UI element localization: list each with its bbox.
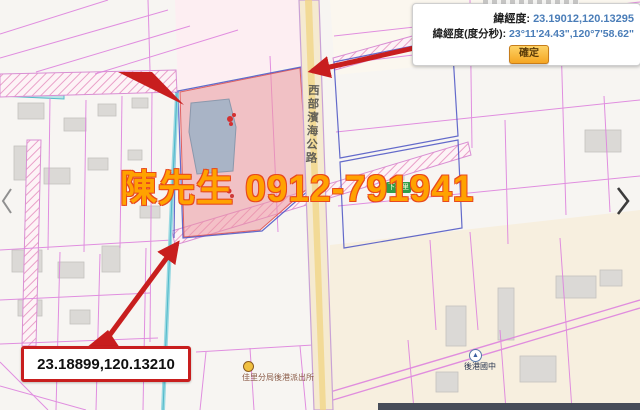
latlng-row: 緯經度: 23.19012,120.13295 (493, 10, 634, 26)
coordinates-panel: 緯經度: 23.19012,120.13295 緯經度(度分秒): 23°11'… (412, 3, 640, 66)
latlng-value: 23.19012,120.13295 (533, 13, 634, 25)
school-label: 後港國中 (450, 361, 510, 372)
dms-value: 23°11'24.43",120°7'58.62" (509, 28, 634, 40)
map-app-window: 23.18993,120.13213 23.18899,120.13210 陳先… (0, 0, 640, 410)
police-station-label: 佳里分局後港派出所 (220, 372, 336, 383)
bottom-edge-bar (378, 403, 640, 410)
watermark-text: 陳先生 0912-791941 (120, 158, 540, 212)
coordinate-callout-bottom: 23.18899,120.13210 (21, 346, 191, 382)
police-station-icon (243, 361, 254, 372)
prev-arrow-icon[interactable] (1, 186, 13, 216)
latlng-label: 緯經度: (493, 13, 530, 25)
dms-row: 緯經度(度分秒): 23°11'24.43",120°7'58.62" (433, 26, 634, 41)
dms-label: 緯經度(度分秒): (433, 28, 507, 40)
confirm-button[interactable]: 確定 (509, 45, 549, 64)
coordinate-callout-bottom-text: 23.18899,120.13210 (37, 356, 175, 373)
cropped-ui-fragment (483, 0, 579, 4)
next-arrow-icon[interactable] (614, 184, 632, 218)
